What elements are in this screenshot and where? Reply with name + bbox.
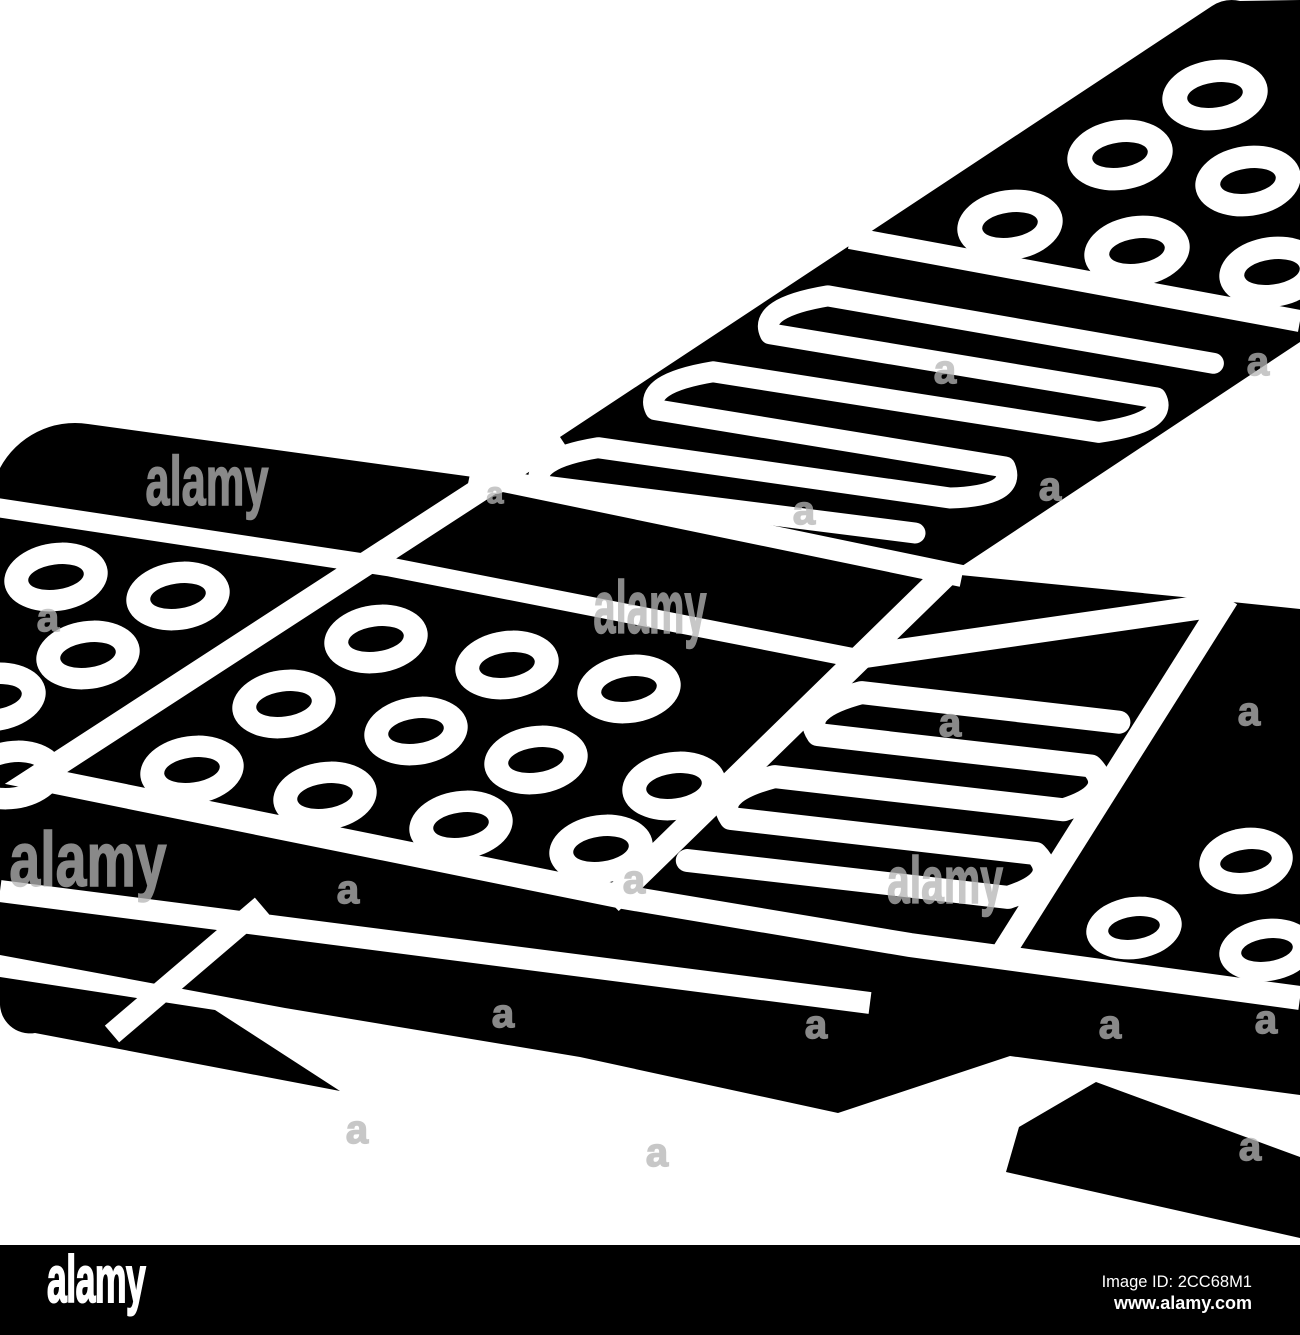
svg-text:a: a xyxy=(1039,465,1062,509)
svg-text:www.alamy.com: www.alamy.com xyxy=(1113,1293,1252,1313)
svg-text:a: a xyxy=(337,868,360,912)
svg-text:a: a xyxy=(492,992,515,1036)
svg-text:alamy: alamy xyxy=(9,817,166,903)
svg-text:a: a xyxy=(1239,1125,1262,1169)
svg-text:a: a xyxy=(487,477,504,510)
svg-text:a: a xyxy=(1099,1003,1122,1047)
svg-text:a: a xyxy=(939,701,962,745)
svg-text:a: a xyxy=(934,348,957,392)
svg-text:a: a xyxy=(1238,690,1261,734)
svg-text:Image ID: 2CC68M1: Image ID: 2CC68M1 xyxy=(1102,1273,1252,1291)
svg-text:a: a xyxy=(805,1003,828,1047)
svg-text:alamy: alamy xyxy=(593,566,706,649)
svg-text:alamy: alamy xyxy=(47,1244,146,1317)
svg-text:a: a xyxy=(793,489,816,533)
svg-text:alamy: alamy xyxy=(145,442,268,520)
svg-text:a: a xyxy=(37,596,60,640)
svg-text:a: a xyxy=(646,1131,669,1175)
svg-text:a: a xyxy=(623,858,646,902)
svg-text:a: a xyxy=(1255,998,1278,1042)
svg-text:alamy: alamy xyxy=(887,843,1003,918)
svg-text:a: a xyxy=(1247,340,1270,384)
svg-text:a: a xyxy=(346,1108,369,1152)
